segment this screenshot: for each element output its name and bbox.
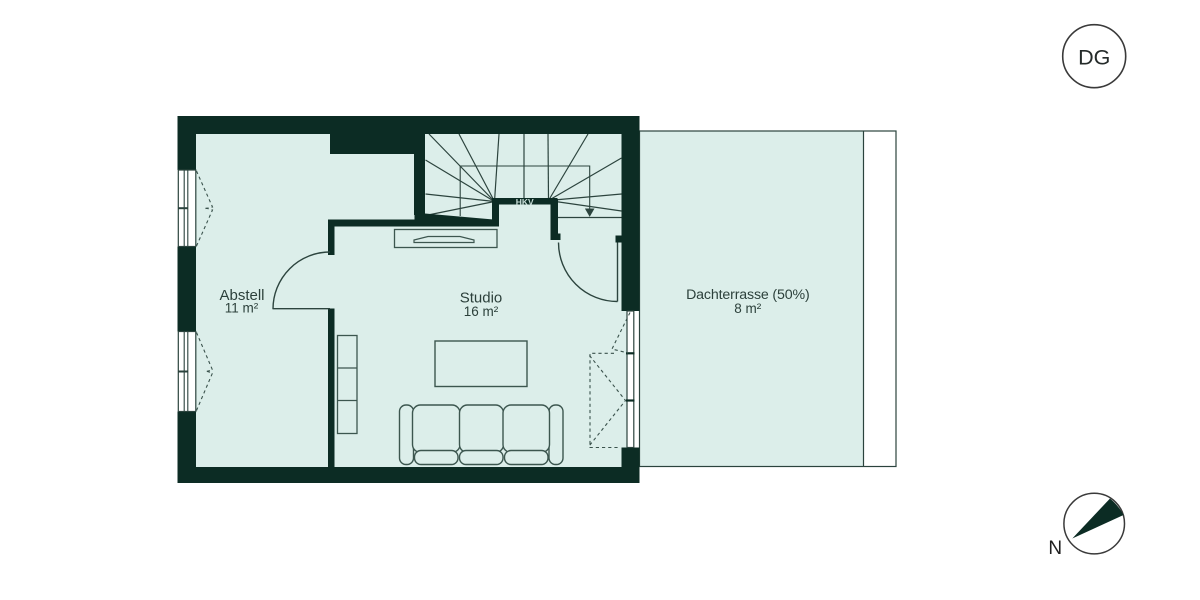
- svg-text:11 m²: 11 m²: [225, 301, 259, 316]
- svg-text:8 m²: 8 m²: [734, 301, 762, 316]
- svg-text:HKV: HKV: [516, 197, 534, 207]
- svg-text:16 m²: 16 m²: [464, 304, 499, 319]
- svg-text:N: N: [1048, 538, 1062, 559]
- svg-text:DG: DG: [1078, 46, 1110, 70]
